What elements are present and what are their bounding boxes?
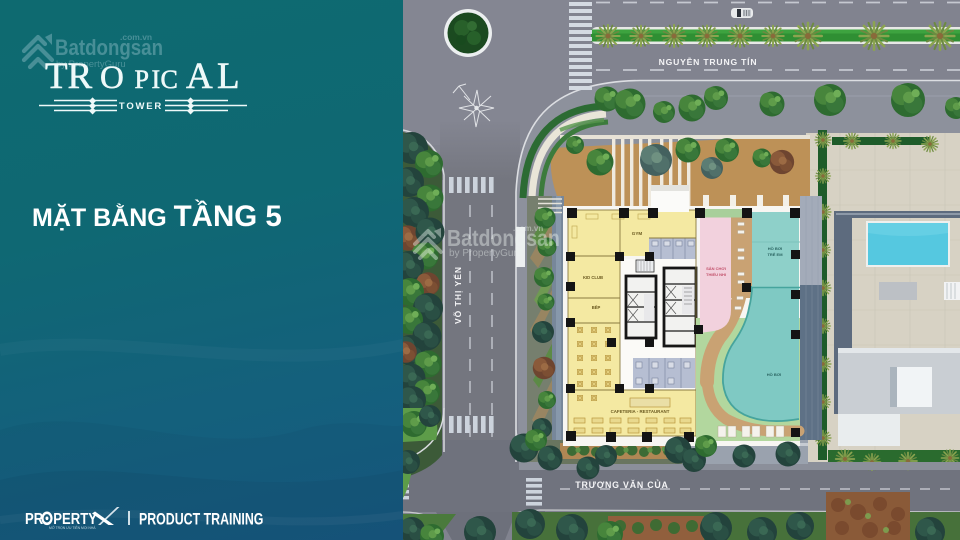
svg-text:PR: PR xyxy=(25,511,44,528)
svg-text:HỒ BƠI: HỒ BƠI xyxy=(767,372,782,377)
svg-text:R: R xyxy=(68,56,93,97)
svg-text:THIẾU NHI: THIẾU NHI xyxy=(706,272,726,277)
svg-text:NGUYỄN TRUNG TÍN: NGUYỄN TRUNG TÍN xyxy=(659,56,758,67)
svg-text:TRƯƠNG VĂN CỦA: TRƯƠNG VĂN CỦA xyxy=(575,479,668,490)
svg-text:T: T xyxy=(45,56,68,97)
svg-text:SÂN CHƠI: SÂN CHƠI xyxy=(706,266,726,271)
svg-text:TRẺ EM: TRẺ EM xyxy=(767,252,783,257)
svg-text:A: A xyxy=(186,56,213,97)
svg-text:KID CLUB: KID CLUB xyxy=(583,275,603,280)
svg-text:GYM: GYM xyxy=(632,231,643,236)
svg-text:I: I xyxy=(152,65,161,94)
svg-text:PRODUCT TRAINING: PRODUCT TRAINING xyxy=(139,511,263,529)
svg-text:VÕ THỊ YẾN: VÕ THỊ YẾN xyxy=(453,266,463,324)
svg-text:O: O xyxy=(100,60,124,96)
svg-text:BẾP: BẾP xyxy=(592,305,601,310)
svg-text:.com.vn: .com.vn xyxy=(513,224,543,233)
svg-text:L: L xyxy=(217,56,240,97)
svg-text:by PropertyGuru: by PropertyGuru xyxy=(449,248,522,259)
svg-text:MỞ TRỌN ƯU TIÊN MỌI NHÀ: MỞ TRỌN ƯU TIÊN MỌI NHÀ xyxy=(49,525,96,530)
svg-text:HỒ BƠI: HỒ BƠI xyxy=(768,246,783,251)
svg-text:C: C xyxy=(161,65,178,94)
svg-text:TOWER: TOWER xyxy=(119,101,163,112)
svg-text:P: P xyxy=(135,65,149,94)
svg-text:CAFETERIA - RESTAURANT: CAFETERIA - RESTAURANT xyxy=(611,409,670,414)
